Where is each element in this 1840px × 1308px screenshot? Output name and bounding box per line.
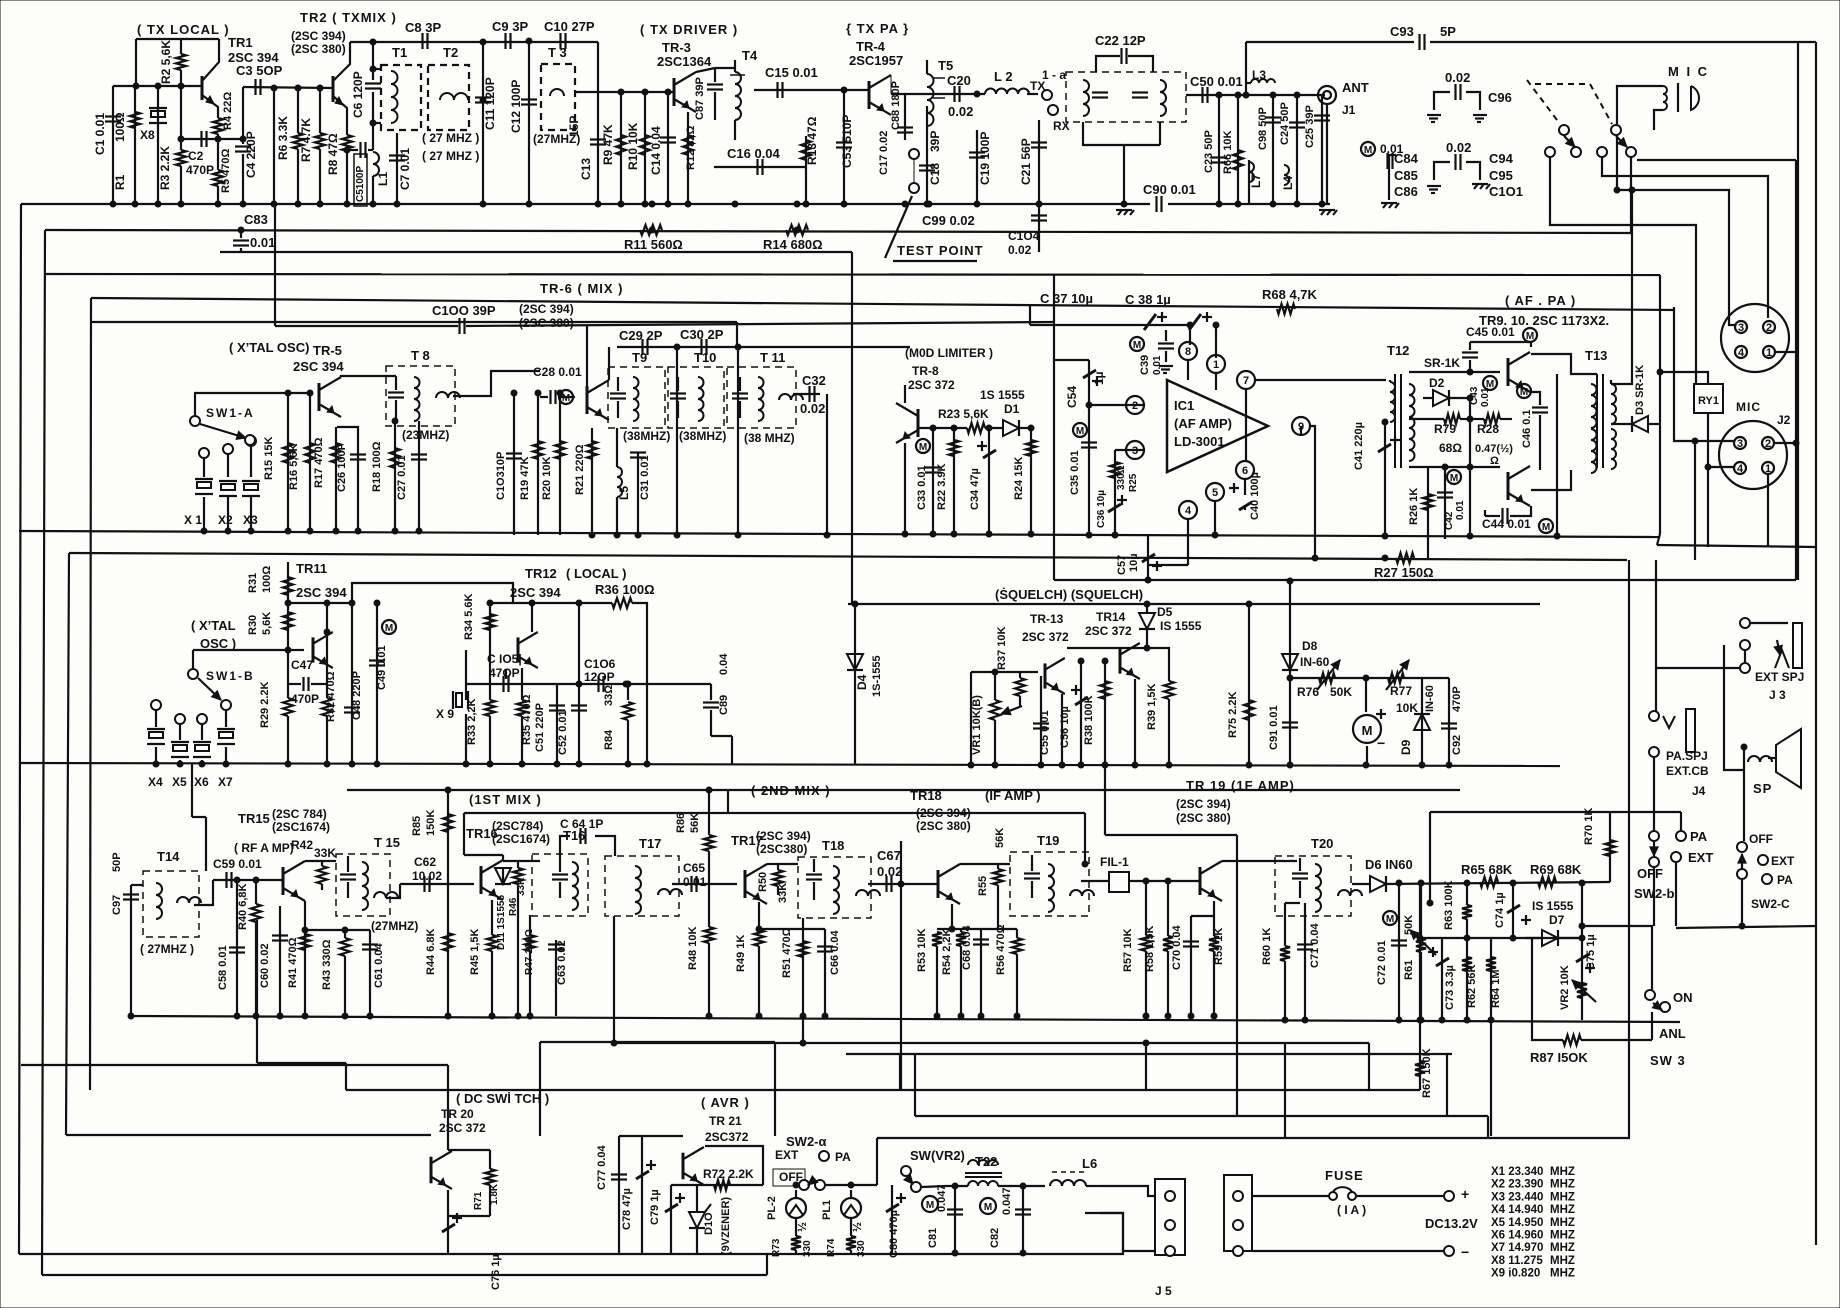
svg-text:{ TX PA }: { TX PA } (846, 21, 909, 36)
svg-text:M: M (1450, 473, 1458, 484)
svg-text:(38MHZ): (38MHZ) (679, 429, 726, 443)
svg-text:T 11: T 11 (760, 350, 785, 365)
svg-text:FIL-1: FIL-1 (1100, 855, 1129, 869)
svg-text:0.02: 0.02 (800, 401, 825, 416)
svg-text:R21 220Ω: R21 220Ω (574, 444, 586, 495)
svg-text:R77: R77 (1390, 684, 1412, 698)
svg-text:C95: C95 (1489, 168, 1513, 183)
svg-text:(2SC 380): (2SC 380) (291, 42, 346, 56)
svg-text:C22 12P: C22 12P (1095, 33, 1146, 48)
svg-text:TR-13: TR-13 (1030, 612, 1064, 626)
svg-text:( 2ND MIX ): ( 2ND MIX ) (751, 783, 831, 798)
svg-text:R74: R74 (826, 1238, 837, 1257)
svg-text:D7: D7 (1549, 913, 1565, 927)
svg-text:C13: C13 (579, 158, 593, 180)
svg-text:M: M (1364, 145, 1372, 156)
svg-text:−: − (1461, 1244, 1469, 1260)
svg-text:TX: TX (1030, 79, 1045, 93)
svg-text:PA: PA (835, 1150, 851, 1164)
svg-text:M: M (1076, 426, 1084, 437)
svg-text:5P: 5P (1440, 24, 1456, 39)
svg-text:(2SC 380): (2SC 380) (519, 316, 574, 330)
svg-text:(2SC 380): (2SC 380) (1176, 811, 1231, 825)
svg-text:C15 0.01: C15 0.01 (765, 65, 818, 80)
svg-text:X2: X2 (218, 513, 233, 527)
svg-text:M I C: M I C (1668, 64, 1709, 79)
svg-text:R20 10K: R20 10K (541, 457, 553, 500)
svg-text:EXT.CB: EXT.CB (1666, 764, 1709, 778)
svg-text:0.02: 0.02 (1445, 70, 1470, 85)
svg-text:C54: C54 (1065, 386, 1079, 408)
svg-text:C93: C93 (1390, 24, 1414, 39)
svg-text:X3: X3 (243, 513, 258, 527)
svg-text:C1O310P: C1O310P (495, 452, 507, 500)
svg-text:R40 6,8K: R40 6,8K (237, 883, 249, 930)
svg-text:33Ω: 33Ω (603, 685, 615, 706)
svg-text:R58 1,5K: R58 1,5K (1144, 925, 1156, 972)
svg-text:C 37 10µ: C 37 10µ (1040, 291, 1093, 306)
svg-text:R1: R1 (113, 174, 127, 190)
svg-text:D4: D4 (855, 674, 869, 690)
svg-text:½: ½ (850, 1222, 864, 1232)
svg-text:(2SC 394): (2SC 394) (291, 29, 346, 43)
svg-text:C32: C32 (802, 373, 826, 388)
svg-text:M: M (1486, 379, 1494, 390)
svg-text:C35 0.01: C35 0.01 (1069, 450, 1081, 495)
svg-text:R55: R55 (977, 876, 989, 896)
svg-text:C67: C67 (877, 848, 901, 863)
svg-text:J 5: J 5 (1155, 1284, 1172, 1298)
svg-text:L7: L7 (1249, 174, 1263, 188)
svg-text:( X’TAL: ( X’TAL (191, 618, 236, 633)
svg-text:C83: C83 (244, 212, 268, 227)
svg-text:TR18: TR18 (910, 788, 942, 803)
svg-text:R79: R79 (1434, 422, 1456, 436)
svg-text:PL1: PL1 (821, 1200, 833, 1220)
svg-text:C75 1µ: C75 1µ (1585, 934, 1597, 970)
svg-text:2: 2 (1766, 322, 1772, 334)
svg-text:C63 0.02: C63 0.02 (556, 940, 568, 985)
svg-text:TEST POINT: TEST POINT (897, 243, 984, 258)
svg-text:R39 1,5K: R39 1,5K (1146, 683, 1158, 730)
svg-text:R18 100Ω: R18 100Ω (371, 441, 383, 492)
svg-text:C20: C20 (947, 73, 971, 88)
svg-text:R86: R86 (675, 813, 687, 833)
svg-text:R19 47K: R19 47K (519, 457, 531, 500)
svg-text:C80 470µ: C80 470µ (888, 1210, 900, 1258)
svg-text:T14: T14 (157, 849, 180, 864)
svg-text:(2SC 394): (2SC 394) (519, 302, 574, 316)
svg-text:C39: C39 (1139, 355, 1151, 375)
svg-text:0.47(½): 0.47(½) (1475, 443, 1513, 455)
svg-text:M: M (984, 1202, 992, 1213)
svg-text:C17: C17 (878, 155, 890, 175)
svg-text:J 3: J 3 (1769, 688, 1786, 702)
svg-text:M: M (1520, 387, 1528, 398)
svg-text:X6 14.960: X6 14.960 (1491, 1230, 1543, 1242)
svg-text:1: 1 (1766, 347, 1772, 359)
svg-text:T 15: T 15 (374, 835, 400, 850)
svg-text:TR2 ( TXMIX ): TR2 ( TXMIX ) (300, 10, 397, 25)
svg-text:M: M (1542, 522, 1550, 533)
svg-text:( TX DRIVER ): ( TX DRIVER ) (640, 22, 738, 37)
svg-text:R38 100K: R38 100K (1083, 695, 1095, 745)
svg-text:R4 22Ω: R4 22Ω (222, 92, 234, 130)
svg-text:100Ω: 100Ω (261, 566, 273, 593)
svg-text:C8 3P: C8 3P (405, 20, 441, 35)
svg-text:(2SC1674): (2SC1674) (272, 820, 330, 834)
svg-text:(AF AMP): (AF AMP) (1174, 416, 1232, 431)
svg-text:ON: ON (1673, 990, 1693, 1005)
svg-text:(2SC784): (2SC784) (492, 819, 543, 833)
svg-text:D5: D5 (1157, 605, 1173, 619)
svg-text:C18: C18 (928, 163, 942, 185)
svg-text:C91 0.01: C91 0.01 (1268, 705, 1280, 750)
svg-text:SW2-α: SW2-α (786, 1134, 827, 1149)
svg-text:TR1: TR1 (228, 35, 253, 50)
svg-text:DC13.2V: DC13.2V (1425, 1216, 1478, 1231)
svg-text:−: − (1377, 735, 1385, 751)
svg-text:C79 1µ: C79 1µ (649, 1189, 661, 1225)
svg-text:R11 560Ω: R11 560Ω (624, 237, 683, 252)
svg-text:( TX LOCAL ): ( TX LOCAL ) (137, 22, 230, 37)
svg-text:1 - a: 1 - a (1042, 68, 1066, 82)
svg-text:470P: 470P (1451, 686, 1463, 712)
svg-text:(2SC1674): (2SC1674) (492, 832, 550, 846)
svg-text:R34 5.6K: R34 5.6K (463, 593, 475, 640)
svg-text:R37 10K: R37 10K (996, 627, 1008, 670)
svg-text:C66 0.04: C66 0.04 (829, 929, 841, 975)
svg-text:R31: R31 (247, 573, 259, 593)
svg-text:2SC1364: 2SC1364 (657, 54, 712, 69)
svg-text:C72 0.01: C72 0.01 (1376, 940, 1388, 985)
svg-text:50P: 50P (111, 852, 123, 872)
svg-text:C62: C62 (414, 855, 436, 869)
svg-text:2: 2 (1765, 438, 1771, 450)
svg-text:M: M (1133, 340, 1141, 351)
svg-text:M: M (919, 442, 927, 453)
svg-text:R69 68K: R69 68K (1530, 862, 1582, 877)
svg-text:X7 14.970: X7 14.970 (1491, 1242, 1543, 1254)
svg-text:D1: D1 (1004, 402, 1020, 416)
svg-text:C29 2P: C29 2P (619, 328, 663, 343)
svg-text:330Ω: 330Ω (1116, 465, 1127, 490)
svg-text:VR2 10K: VR2 10K (1559, 965, 1571, 1010)
svg-text:R47 100Ω: R47 100Ω (524, 929, 535, 975)
svg-text:12OP: 12OP (584, 670, 615, 684)
svg-text:J1: J1 (1342, 103, 1356, 117)
svg-text:M: M (1362, 723, 1373, 738)
svg-text:R25: R25 (1128, 473, 1139, 492)
svg-text:R60 1K: R60 1K (1261, 928, 1273, 965)
svg-text:OFF: OFF (1749, 832, 1773, 846)
svg-text:ANT: ANT (1342, 80, 1369, 95)
svg-text:C65: C65 (683, 861, 705, 875)
svg-text:SP: SP (1753, 781, 1772, 796)
svg-text:VR1 10K(B): VR1 10K(B) (971, 695, 983, 755)
svg-text:X2 23.390: X2 23.390 (1491, 1179, 1543, 1191)
svg-text:(38 MHZ): (38 MHZ) (744, 431, 795, 445)
svg-text:( RF A MP): ( RF A MP) (234, 841, 294, 855)
svg-text:R43 330Ω: R43 330Ω (321, 939, 333, 990)
svg-text:R8 47Ω: R8 47Ω (326, 133, 340, 175)
svg-text:1: 1 (1213, 359, 1219, 371)
svg-text:R7 4.7K: R7 4.7K (299, 118, 313, 162)
svg-text:C27 0.01: C27 0.01 (396, 455, 408, 500)
svg-text:C74 1µ: C74 1µ (1494, 892, 1506, 928)
svg-text:C82: C82 (989, 1228, 1001, 1248)
svg-text:OSC ): OSC ) (200, 636, 236, 651)
svg-text:M: M (926, 1200, 934, 1211)
svg-text:R13 47Ω: R13 47Ω (805, 116, 819, 165)
svg-text:R62 56K: R62 56K (1466, 965, 1478, 1008)
svg-text:2SC 394: 2SC 394 (296, 585, 347, 600)
svg-text:X 9: X 9 (436, 707, 454, 721)
svg-text:X4: X4 (148, 775, 163, 789)
svg-text:(2SC 380): (2SC 380) (916, 819, 971, 833)
svg-text:C2: C2 (188, 149, 204, 163)
svg-text:C31 0.01: C31 0.01 (639, 455, 651, 500)
svg-text:C6 120P: C6 120P (351, 71, 365, 118)
svg-text:(27MHZ): (27MHZ) (371, 919, 418, 933)
svg-text:R14 680Ω: R14 680Ω (763, 237, 823, 252)
svg-text:2SC 372: 2SC 372 (1022, 630, 1069, 644)
svg-text:( AF . PA ): ( AF . PA ) (1505, 293, 1576, 308)
svg-text:L6: L6 (1082, 1156, 1097, 1171)
svg-text:2SC372: 2SC372 (705, 1130, 749, 1144)
svg-text:C44 0.01: C44 0.01 (1482, 517, 1531, 531)
svg-text:C IO5|: C IO5| (487, 652, 522, 666)
svg-text:R12 82Ω: R12 82Ω (685, 126, 697, 170)
svg-text:R26 1K: R26 1K (1408, 488, 1420, 525)
svg-text:470P: 470P (186, 163, 214, 177)
svg-text:68Ω: 68Ω (1439, 441, 1462, 455)
svg-text:R23 5,6K: R23 5,6K (938, 407, 989, 421)
svg-text:TR-6 ( MIX ): TR-6 ( MIX ) (540, 281, 624, 296)
svg-text:C3 5OP: C3 5OP (236, 63, 283, 78)
svg-text:C49 0.01: C49 0.01 (376, 645, 388, 690)
svg-text:TR-4: TR-4 (856, 39, 886, 54)
svg-text:0.047: 0.047 (936, 1184, 948, 1212)
svg-text:C99 0.02: C99 0.02 (922, 213, 975, 228)
svg-text:C30 2P: C30 2P (680, 327, 724, 342)
svg-text:R17 470Ω: R17 470Ω (313, 437, 325, 488)
svg-text:(1ST MIX ): (1ST MIX ) (469, 792, 542, 807)
svg-text:39P: 39P (928, 131, 942, 152)
svg-text:(23MHZ): (23MHZ) (402, 428, 449, 442)
svg-text:(38MHZ): (38MHZ) (623, 429, 670, 443)
svg-text:C1O1: C1O1 (1489, 184, 1523, 199)
svg-text:2SC1957: 2SC1957 (849, 53, 903, 68)
svg-text:470P: 470P (291, 692, 319, 706)
svg-text:X1 23.340: X1 23.340 (1491, 1166, 1543, 1178)
svg-text:C33 0.01: C33 0.01 (916, 465, 928, 510)
svg-text:C1OO 39P: C1OO 39P (432, 303, 496, 318)
svg-text:R87 I5OK: R87 I5OK (1530, 1050, 1588, 1065)
svg-text:( I A ): ( I A ) (1337, 1203, 1366, 1217)
svg-text:C26 100P: C26 100P (336, 443, 348, 492)
svg-text:MHZ: MHZ (1550, 1242, 1575, 1254)
svg-text:M: M (1526, 331, 1534, 342)
svg-text:PA: PA (1777, 873, 1793, 887)
svg-text:MHZ: MHZ (1550, 1204, 1575, 1216)
svg-text:C86: C86 (1394, 184, 1418, 199)
svg-text:TR 20: TR 20 (441, 1107, 474, 1121)
svg-text:(2SC 394): (2SC 394) (756, 829, 811, 843)
svg-text:C11 120P: C11 120P (483, 77, 497, 130)
svg-text:C42: C42 (1444, 511, 1455, 530)
svg-text:R51 470Ω: R51 470Ω (781, 927, 793, 978)
svg-text:R10 10K: R10 10K (626, 122, 640, 170)
svg-text:D3 SR-1K: D3 SR-1K (1634, 365, 1646, 415)
svg-text:R75 2.2K: R75 2.2K (1227, 691, 1239, 738)
svg-text:8: 8 (1185, 346, 1191, 358)
svg-text:R33 2,2K: R33 2,2K (466, 698, 478, 745)
svg-text:C61 0.04: C61 0.04 (373, 942, 385, 988)
svg-text:C78 47µ: C78 47µ (621, 1188, 633, 1230)
svg-text:PA.SPJ: PA.SPJ (1666, 749, 1708, 763)
svg-text:L 2: L 2 (994, 69, 1013, 84)
svg-text:EXT SPJ: EXT SPJ (1755, 670, 1804, 684)
svg-text:T19: T19 (1037, 833, 1059, 848)
svg-text:TR12: TR12 (525, 566, 557, 581)
svg-text:T20: T20 (1311, 836, 1333, 851)
svg-text:C21 56P: C21 56P (1019, 138, 1033, 185)
svg-text:2SC 394: 2SC 394 (510, 585, 561, 600)
svg-text:( 27MHZ ): ( 27MHZ ) (140, 942, 194, 956)
svg-text:0.02: 0.02 (948, 104, 973, 119)
svg-text:0.02: 0.02 (1008, 243, 1032, 257)
svg-text:PA: PA (1690, 829, 1708, 844)
svg-text:R28: R28 (1477, 422, 1499, 436)
svg-text:T10: T10 (694, 350, 716, 365)
svg-text:TR-3: TR-3 (662, 40, 691, 55)
svg-text:C28 0.01: C28 0.01 (533, 365, 582, 379)
svg-text:C70 0.04: C70 0.04 (1171, 924, 1183, 970)
svg-text:0.02: 0.02 (878, 131, 890, 152)
svg-text:C59 0.01: C59 0.01 (213, 857, 262, 871)
svg-text:C58 0.01: C58 0.01 (217, 945, 229, 990)
svg-text:MIC: MIC (1736, 400, 1761, 414)
svg-text:2SC 372: 2SC 372 (439, 1121, 486, 1135)
svg-text:C14 0.04: C14 0.04 (649, 126, 663, 175)
svg-text:½: ½ (795, 1222, 809, 1232)
svg-text:C98 50P: C98 50P (1257, 107, 1269, 150)
svg-text:1S 1555: 1S 1555 (980, 388, 1025, 402)
svg-text:C89: C89 (718, 695, 730, 715)
svg-text:C81: C81 (927, 1228, 939, 1248)
svg-text:C96: C96 (1488, 90, 1512, 105)
svg-text:TR15: TR15 (238, 811, 270, 826)
svg-text:C90 0.01: C90 0.01 (1143, 182, 1196, 197)
svg-text:(M0D LIMITER ): (M0D LIMITER ) (905, 346, 993, 360)
svg-text:R71: R71 (473, 1191, 484, 1210)
svg-text:T1: T1 (392, 45, 407, 60)
svg-text:( LOCAL ): ( LOCAL ) (566, 566, 626, 581)
svg-text:(2SC 394): (2SC 394) (1176, 797, 1231, 811)
svg-text:M: M (385, 623, 393, 634)
svg-text:C73 3.3µ: C73 3.3µ (1444, 965, 1456, 1010)
svg-text:MHZ: MHZ (1550, 1166, 1575, 1178)
svg-text:C48 220P: C48 220P (351, 671, 363, 720)
svg-text:(9VZENER): (9VZENER) (720, 1197, 732, 1255)
svg-text:0.04: 0.04 (718, 653, 730, 675)
svg-text:150K: 150K (425, 810, 437, 836)
svg-text:R53 10K: R53 10K (916, 929, 928, 972)
svg-text:+: + (1461, 1186, 1469, 1202)
svg-text:( X’TAL OSC): ( X’TAL OSC) (229, 340, 309, 355)
svg-text:MHZ: MHZ (1550, 1191, 1575, 1203)
svg-text:TR 19 (1F AMP): TR 19 (1F AMP) (1186, 778, 1295, 793)
svg-text:47OP: 47OP (489, 666, 520, 680)
svg-text:J4: J4 (1692, 784, 1706, 798)
svg-text:R29 2.2K: R29 2.2K (259, 681, 271, 728)
svg-text:R67 150K: R67 150K (1421, 1048, 1433, 1098)
svg-text:IS 1555: IS 1555 (1532, 899, 1574, 913)
svg-text:C71 0.04: C71 0.04 (1309, 922, 1321, 968)
svg-text:R70 1K: R70 1K (1583, 808, 1595, 845)
svg-text:D8: D8 (1302, 639, 1318, 653)
svg-text:R6 3.3K: R6 3.3K (276, 116, 290, 160)
svg-text:T13: T13 (1585, 348, 1607, 363)
svg-text:T2: T2 (443, 45, 458, 60)
svg-text:1µ: 1µ (1092, 371, 1106, 385)
svg-text:PL-2: PL-2 (766, 1196, 778, 1220)
svg-text:(2SC 784): (2SC 784) (272, 807, 327, 821)
svg-text:C41 220µ: C41 220µ (1353, 422, 1365, 470)
svg-text:R65 68K: R65 68K (1461, 862, 1513, 877)
svg-text:C1O6: C1O6 (584, 657, 616, 671)
svg-text:T 8: T 8 (411, 348, 430, 363)
svg-text:X4 14.940: X4 14.940 (1491, 1204, 1543, 1216)
svg-text:R85: R85 (411, 816, 423, 836)
svg-text:R15 15K: R15 15K (263, 437, 275, 480)
svg-text:R72 2.2K: R72 2.2K (703, 1167, 754, 1181)
svg-text:MHZ: MHZ (1550, 1217, 1575, 1229)
svg-text:C19 100P: C19 100P (978, 132, 992, 185)
svg-text:4: 4 (1738, 347, 1745, 359)
svg-text:EXT: EXT (775, 1148, 799, 1162)
svg-text:T 3: T 3 (548, 45, 567, 60)
svg-text:C4 220P: C4 220P (244, 131, 258, 178)
svg-text:T9: T9 (632, 350, 647, 365)
svg-text:X6: X6 (194, 775, 209, 789)
svg-text:0.01: 0.01 (250, 235, 275, 250)
svg-text:L4: L4 (1281, 176, 1295, 190)
svg-text:R41 470Ω: R41 470Ω (287, 937, 299, 988)
svg-text:SW1-A: SW1-A (206, 406, 255, 420)
svg-text:5,6K: 5,6K (261, 612, 273, 635)
svg-text:C47: C47 (291, 658, 313, 672)
svg-text:X8 11.275: X8 11.275 (1491, 1255, 1543, 1267)
svg-text:C 64 1P: C 64 1P (560, 817, 603, 831)
svg-text:X3 23.440: X3 23.440 (1491, 1191, 1543, 1203)
svg-text:FUSE: FUSE (1325, 1168, 1364, 1183)
svg-text:X8: X8 (140, 128, 155, 142)
svg-text:R56 470Ω: R56 470Ω (995, 924, 1007, 975)
svg-text:TR11: TR11 (296, 561, 327, 576)
svg-text:TR-8: TR-8 (912, 364, 939, 378)
svg-text:R61: R61 (1403, 960, 1415, 980)
svg-text:R36 100Ω: R36 100Ω (595, 582, 655, 597)
svg-text:IN-60: IN-60 (1424, 685, 1436, 712)
svg-text:J2: J2 (1777, 413, 1791, 427)
svg-text:56K: 56K (689, 813, 701, 833)
svg-text:X9 i0.820: X9 i0.820 (1491, 1268, 1540, 1280)
svg-text:2SC 372: 2SC 372 (1085, 624, 1132, 638)
svg-text:C34 47µ: C34 47µ (969, 468, 981, 510)
svg-text:1.8K: 1.8K (489, 1183, 500, 1205)
